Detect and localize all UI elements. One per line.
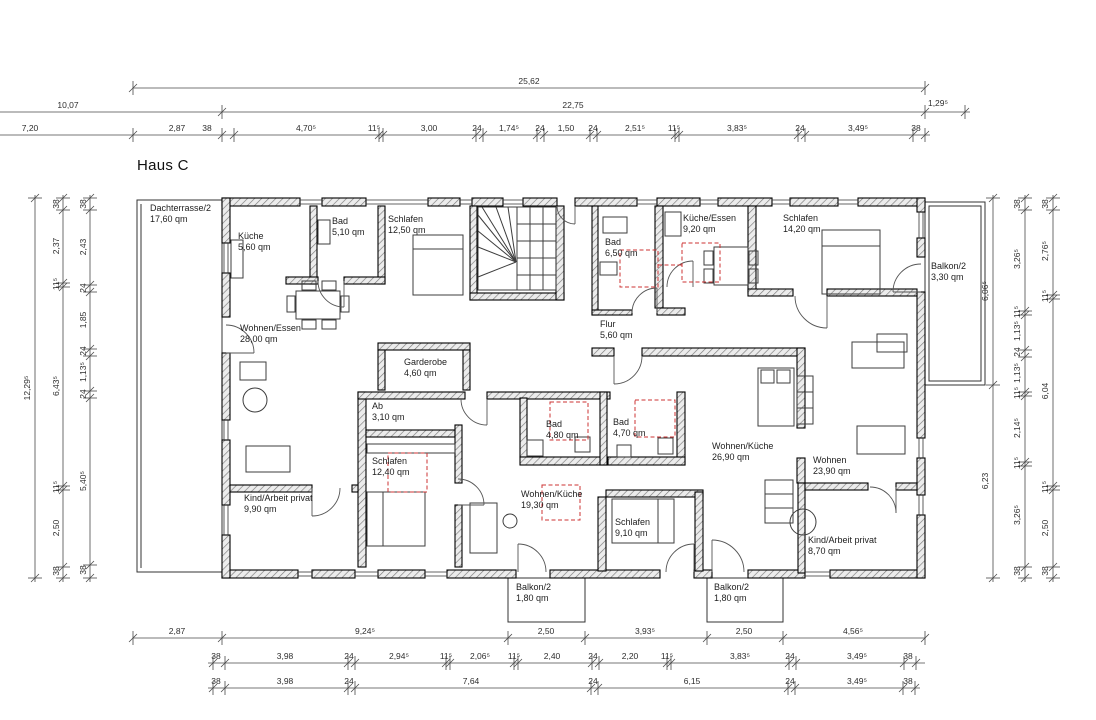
dim-label: 24 (785, 651, 794, 661)
dim-label: 1,29⁵ (928, 98, 948, 108)
dim-label: 38 (903, 676, 912, 686)
dim-label: 38 (78, 199, 88, 208)
dim-label: 10,07 (57, 100, 78, 110)
dim-label: 1,50 (558, 123, 575, 133)
room-kind-arbeit-990: Kind/Arbeit privat9,90 qm (244, 493, 313, 516)
dim-label: 24 (78, 283, 88, 292)
dim-label: 11⁵ (508, 651, 520, 661)
dim-label: 2,87 (169, 626, 186, 636)
dim-label: 1,85 (78, 312, 88, 329)
dim-label: 1,13⁵ (1012, 363, 1022, 383)
dim-label: 38 (1012, 199, 1022, 208)
labels-layer: Haus C 25,6210,0722,751,29⁵7,202,87384,7… (0, 0, 1096, 720)
dim-label: 38 (211, 651, 220, 661)
room-balkon-left: Balkon/21,80 qm (516, 582, 551, 605)
dim-label: 5,40⁵ (78, 471, 88, 491)
dim-label: 2,76⁵ (1040, 241, 1050, 261)
dim-label: 2,94⁵ (389, 651, 409, 661)
room-flur: Flur5,60 qm (600, 319, 633, 342)
room-bad-470: Bad4,70 qm (613, 417, 646, 440)
dim-label: 11⁵ (368, 123, 380, 133)
dim-label: 11⁵ (1012, 306, 1022, 318)
dim-label: 3,00 (421, 123, 438, 133)
room-kueche-essen: Küche/Essen9,20 qm (683, 213, 736, 236)
dim-label: 38 (211, 676, 220, 686)
dim-label: 6,04 (1040, 383, 1050, 400)
dim-label: 38 (911, 123, 920, 133)
dim-label: 3,26⁵ (1012, 249, 1022, 269)
room-kind-arbeit-870: Kind/Arbeit privat8,70 qm (808, 535, 877, 558)
dim-label: 38 (202, 123, 211, 133)
dim-label: 11⁵ (440, 651, 452, 661)
dim-label: 24 (588, 123, 597, 133)
dim-label: 24 (588, 651, 597, 661)
dim-label: 3,98 (277, 651, 294, 661)
room-wohnen-kueche-2690: Wohnen/Küche26,90 qm (712, 441, 773, 464)
room-schlafen-1240: Schlafen12,40 qm (372, 456, 410, 479)
room-wohnen-kueche-1930: Wohnen/Küche19,30 qm (521, 489, 582, 512)
dim-label: 11⁵ (51, 481, 61, 493)
dim-label: 3,26⁵ (1012, 505, 1022, 525)
dim-label: 1,13⁵ (78, 362, 88, 382)
dim-label: 1,13⁵ (1012, 321, 1022, 341)
dim-label: 3,83⁵ (730, 651, 750, 661)
dim-label: 2,50 (1040, 520, 1050, 537)
dim-label: 38 (1012, 566, 1022, 575)
dim-label: 24 (795, 123, 804, 133)
dim-label: 12,29⁵ (22, 376, 32, 401)
room-bad-510: Bad5,10 qm (332, 216, 365, 239)
dim-label: 3,49⁵ (848, 123, 868, 133)
dim-label: 2,43 (78, 239, 88, 256)
dim-label: 6,15 (684, 676, 701, 686)
dim-label: 2,50 (538, 626, 555, 636)
room-ab: Ab3,10 qm (372, 401, 405, 424)
room-schlafen-910: Schlafen9,10 qm (615, 517, 650, 540)
dim-label: 1,74⁵ (499, 123, 519, 133)
dim-label: 4,70⁵ (296, 123, 316, 133)
room-wohnen-2390: Wohnen23,90 qm (813, 455, 851, 478)
dim-label: 24 (535, 123, 544, 133)
dim-label: 11⁵ (51, 278, 61, 290)
dim-label: 22,75 (562, 100, 583, 110)
dim-label: 24 (588, 676, 597, 686)
dim-label: 11⁵ (668, 123, 680, 133)
dim-label: 3,98 (277, 676, 294, 686)
dim-label: 11⁵ (1040, 290, 1050, 302)
dim-label: 6,06⁵ (980, 281, 990, 301)
dim-label: 2,87 (169, 123, 186, 133)
dim-label: 2,14⁵ (1012, 418, 1022, 438)
dim-label: 24 (1012, 347, 1022, 356)
room-bad-480: Bad4,80 qm (546, 419, 579, 442)
dim-label: 2,40 (544, 651, 561, 661)
dim-label: 6,23 (980, 473, 990, 490)
dim-label: 2,50 (736, 626, 753, 636)
dim-label: 2,37 (51, 238, 61, 255)
dim-label: 25,62 (518, 76, 539, 86)
dim-label: 3,49⁵ (847, 651, 867, 661)
dim-label: 38 (51, 199, 61, 208)
room-kueche: Küche5,60 qm (238, 231, 271, 254)
dim-label: 24 (78, 346, 88, 355)
dim-label: 24 (344, 651, 353, 661)
dim-label: 3,93⁵ (635, 626, 655, 636)
room-garderobe: Garderobe4,60 qm (404, 357, 447, 380)
dim-label: 24 (785, 676, 794, 686)
floor-plan-canvas: Haus C 25,6210,0722,751,29⁵7,202,87384,7… (0, 0, 1096, 720)
dim-label: 6,43⁵ (51, 376, 61, 396)
dim-label: 38 (51, 566, 61, 575)
dim-label: 9,24⁵ (355, 626, 375, 636)
dim-label: 7,20 (22, 123, 39, 133)
room-bad-650: Bad6,50 qm (605, 237, 638, 260)
room-dachterrasse: Dachterrasse/217,60 qm (150, 203, 211, 226)
dim-label: 3,83⁵ (727, 123, 747, 133)
room-balkon-330: Balkon/23,30 qm (931, 261, 966, 284)
dim-label: 24 (472, 123, 481, 133)
dim-label: 11⁵ (661, 651, 673, 661)
dim-label: 11⁵ (1012, 387, 1022, 399)
dim-label: 7,64 (463, 676, 480, 686)
dim-label: 38 (903, 651, 912, 661)
room-schlafen-1250: Schlafen12,50 qm (388, 214, 426, 237)
dim-label: 11⁵ (1012, 457, 1022, 469)
dim-label: 24 (344, 676, 353, 686)
dim-label: 2,51⁵ (625, 123, 645, 133)
dim-label: 24 (78, 389, 88, 398)
dim-label: 2,50 (51, 520, 61, 537)
dim-label: 2,06⁵ (470, 651, 490, 661)
dim-label: 4,56⁵ (843, 626, 863, 636)
room-schlafen-1420: Schlafen14,20 qm (783, 213, 821, 236)
dim-label: 3,49⁵ (847, 676, 867, 686)
dim-label: 11⁵ (1040, 481, 1050, 493)
dim-label: 38 (1040, 199, 1050, 208)
dim-label: 2,20 (622, 651, 639, 661)
plan-title: Haus C (137, 157, 189, 174)
dim-label: 38 (1040, 566, 1050, 575)
dim-label: 38 (78, 565, 88, 574)
room-wohnen-essen: Wohnen/Essen28,00 qm (240, 323, 301, 346)
room-balkon-right: Balkon/21,80 qm (714, 582, 749, 605)
